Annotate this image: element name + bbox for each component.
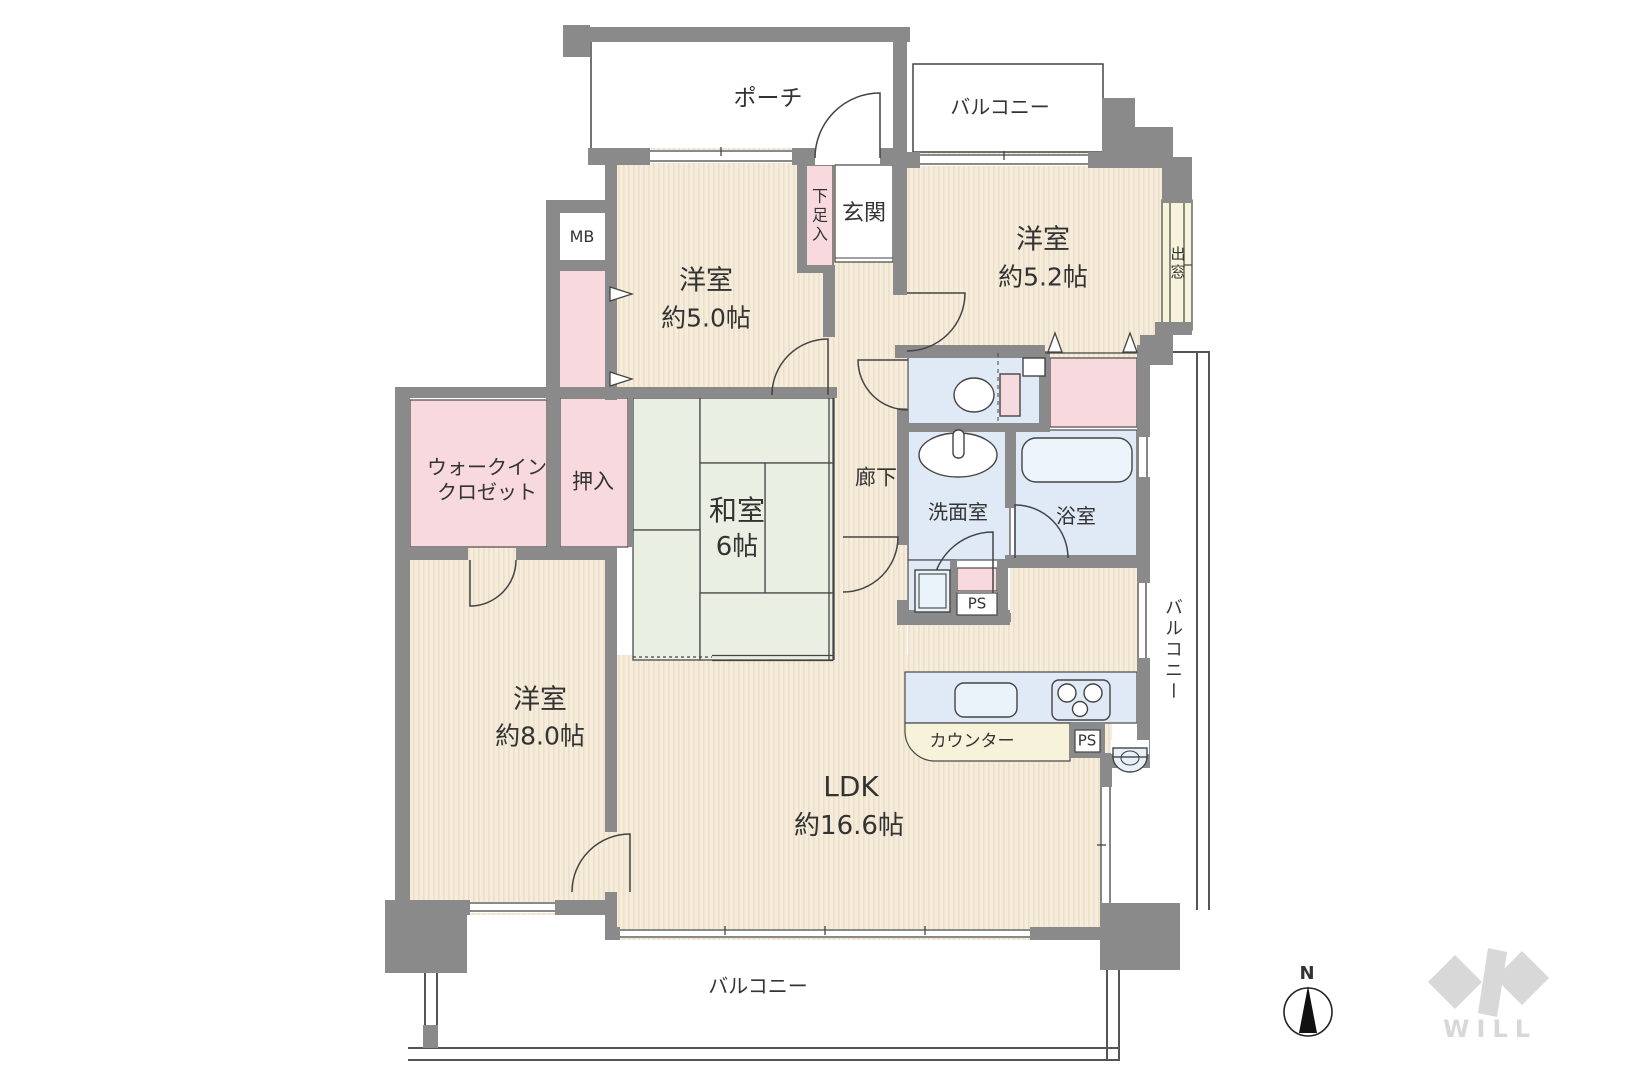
room-label-ldk: LDK — [823, 773, 879, 801]
floor-plan-drawing — [0, 0, 1636, 1091]
room-label-western8-0: 洋室 — [513, 687, 567, 714]
bathtub-icon — [1022, 438, 1132, 482]
room-label-oshiire: 押入 — [572, 472, 614, 493]
room-label-meter-box: MB — [570, 229, 595, 245]
label-bay-window: 出窓 — [1170, 246, 1185, 282]
room-label-genkan: 玄関 — [842, 203, 886, 225]
room-label-western5-0: 洋室 — [679, 268, 733, 295]
tatami-mats — [633, 398, 833, 660]
room-label-shoebox: 下足入 — [810, 188, 826, 245]
room-label-washitsu: 和室 — [709, 497, 765, 525]
room-label-bathroom: 浴室 — [1056, 506, 1096, 526]
room-size-washitsu: 6帖 — [716, 534, 759, 560]
kitchen-sink-icon — [955, 683, 1017, 717]
room-label-wic-1: ウォークイン — [427, 457, 547, 477]
slop-sink-icon — [1111, 740, 1149, 772]
room-label-balcony-bottom: バルコニー — [708, 976, 808, 996]
room-size-western5-2: 約5.2帖 — [998, 265, 1088, 290]
room-label-porch: ポーチ — [734, 88, 803, 111]
room-label-balcony-top: バルコニー — [950, 97, 1050, 117]
room-size-western8-0: 約8.0帖 — [495, 724, 585, 749]
compass-north-label: N — [1299, 965, 1314, 983]
label-ps-bath: PS — [968, 597, 987, 612]
compass-icon — [1284, 986, 1332, 1036]
room-size-western5-0: 約5.0帖 — [661, 306, 751, 331]
room-label-hallway: 廊下 — [855, 468, 897, 489]
stove-icon — [1052, 680, 1110, 720]
washing-machine-icon — [915, 570, 950, 612]
floor-plan-canvas: ポーチ バルコニー 玄関 下足入 MB 洋室 約5.0帖 洋室 約5.2帖 出窓… — [0, 0, 1636, 1091]
room-label-wic-2: クロゼット — [437, 482, 537, 502]
bathroom-window — [1137, 437, 1149, 477]
room-label-washroom: 洗面室 — [928, 502, 988, 522]
room-label-balcony-right: バルコニー — [1163, 598, 1181, 703]
label-ps-kitchen: PS — [1078, 734, 1097, 749]
will-logo — [1428, 948, 1549, 1017]
will-logo-text: WILL — [1443, 1017, 1537, 1041]
western8-window — [470, 902, 555, 913]
kitchen-window — [1137, 583, 1148, 658]
label-counter: カウンター — [930, 734, 1015, 751]
room-label-western5-2: 洋室 — [1016, 227, 1070, 254]
room-size-ldk: 約16.6帖 — [794, 813, 904, 839]
